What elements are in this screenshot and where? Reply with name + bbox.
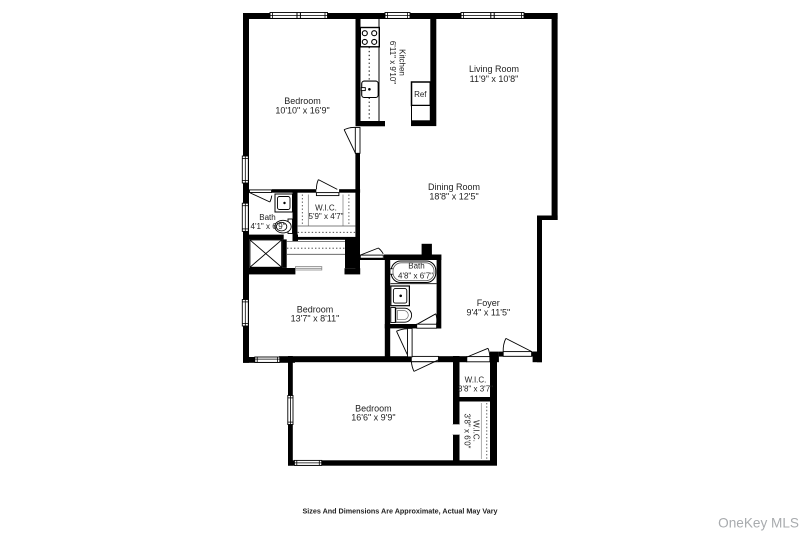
svg-text:Bath: Bath [408,262,424,271]
svg-text:Kitchen: Kitchen [397,49,406,76]
svg-text:Dining Room: Dining Room [428,182,480,192]
svg-text:18'8" x 12'5": 18'8" x 12'5" [429,192,478,202]
svg-text:Bedroom: Bedroom [284,96,321,106]
svg-text:6'11" x 9'10": 6'11" x 9'10" [388,41,397,84]
svg-text:Foyer: Foyer [477,298,500,308]
svg-text:OneKey MLS: OneKey MLS [718,516,799,531]
svg-text:Bath: Bath [259,213,275,222]
svg-text:Living Room: Living Room [469,64,519,74]
svg-text:Ref: Ref [414,90,427,99]
svg-text:W.I.C.: W.I.C. [465,376,487,385]
svg-text:16'6" x 9'9": 16'6" x 9'9" [351,413,395,423]
svg-text:13'7" x 8'11": 13'7" x 8'11" [291,314,340,324]
svg-text:W.I.C.: W.I.C. [472,420,481,442]
svg-text:10'10" x 16'9": 10'10" x 16'9" [275,106,329,116]
svg-text:11'9" x 10'8": 11'9" x 10'8" [470,74,519,84]
svg-text:3'8" x 3'7": 3'8" x 3'7" [458,385,493,394]
svg-text:4'8" x 6'7": 4'8" x 6'7" [398,272,433,281]
svg-text:4'1" x 6'9": 4'1" x 6'9" [251,222,286,231]
svg-text:Sizes And Dimensions Are Appro: Sizes And Dimensions Are Approximate, Ac… [302,507,497,516]
svg-text:5'9" x 4'7": 5'9" x 4'7" [309,212,344,221]
svg-text:3'8" x 6'0": 3'8" x 6'0" [463,414,472,449]
svg-text:9'4" x 11'5": 9'4" x 11'5" [466,307,510,317]
